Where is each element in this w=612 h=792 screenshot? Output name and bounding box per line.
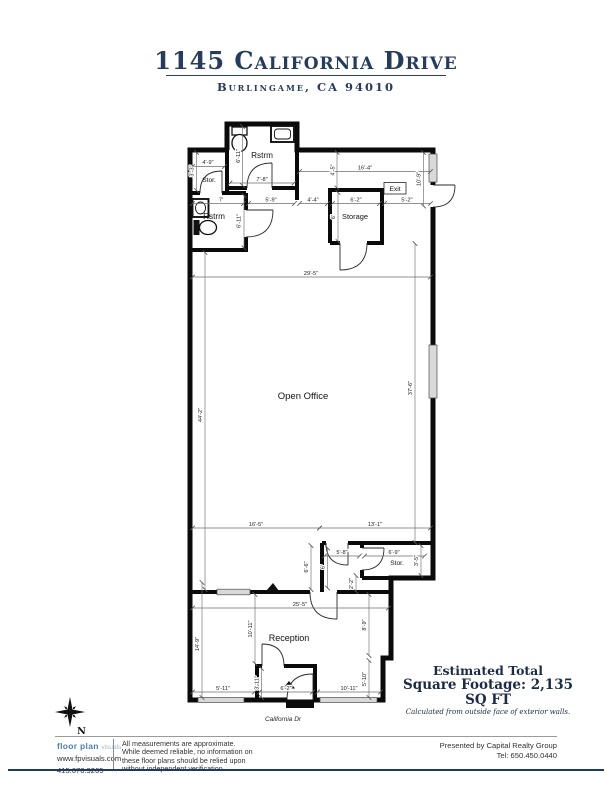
door-rstrm-left: [246, 210, 273, 237]
dim-label: 5'-9": [265, 198, 276, 204]
dim-label: 6'-11": [236, 149, 242, 163]
toilet-tank-left: [194, 220, 200, 235]
summary-line2: Square Footage: 2,135 SQ FT: [400, 678, 576, 708]
dim-label: 7'-8": [256, 177, 267, 183]
window-front-left: [198, 698, 244, 703]
dim-label: 5'-2": [401, 198, 412, 204]
brand-logo-bold: floor plan: [57, 741, 99, 751]
presented-tel: Tel: 650.450.0440: [440, 751, 557, 761]
door-rstrm-top: [247, 163, 272, 188]
brand-logo-light: visuals: [101, 744, 121, 751]
dim-label: 7': [219, 198, 223, 204]
dim-label: 5'-10": [362, 672, 368, 686]
window-divider: [217, 589, 250, 595]
door-stop-wedge: [266, 583, 279, 591]
door-exit: [433, 185, 455, 207]
dim-label: 6'-6": [304, 561, 310, 572]
summary-note: Calculated from outside face of exterior…: [400, 708, 576, 717]
dim-label: 10'-11": [248, 621, 254, 638]
toilet-bowl-top: [232, 135, 247, 152]
window-front-right: [320, 698, 377, 703]
dimension-labels: 4'-9" 7'-8" 16'-4" 7' 5'-9" 4'-4" 6'-2" …: [190, 149, 423, 692]
dim-label: 29'-5": [304, 271, 318, 277]
sink-basin-top: [275, 129, 291, 139]
windows: [198, 154, 437, 702]
dim-label: 10'-11": [341, 686, 358, 692]
room-label-stor-top: Stor.: [202, 177, 216, 184]
footer-divider: [113, 739, 114, 771]
exit-label: Exit: [389, 186, 400, 193]
doors: [200, 163, 455, 708]
room-label-storage: Storage: [342, 212, 368, 221]
door-stor-right: [362, 548, 384, 570]
floor-plan-page: 1145 California Drive Burlingame, CA 940…: [0, 0, 612, 792]
door-storage: [340, 243, 367, 270]
room-label-rstrm-left: Rstrm: [203, 212, 225, 221]
presented-by: Presented by Capital Realty Group: [440, 741, 557, 751]
door-reception: [310, 592, 337, 619]
dim-label: 10'-9": [417, 172, 423, 186]
street-label: California Dr: [265, 716, 302, 723]
dim-label: 3'-3": [190, 165, 196, 176]
exit-tag: Exit: [384, 183, 406, 195]
dim-label: 6'-2": [350, 198, 361, 204]
room-label-open-office: Open Office: [278, 391, 329, 402]
room-label-stor-right: Stor.: [390, 560, 404, 567]
dim-label: 4'-4": [307, 198, 318, 204]
dim-label: 6': [321, 565, 327, 569]
dim-label: 3'-11": [255, 676, 261, 690]
window-right-top: [429, 154, 437, 182]
window-right-mid: [429, 345, 437, 398]
dim-label: 5'-11": [216, 686, 230, 692]
dim-label: 4'-9": [202, 160, 213, 166]
dim-label: 6'-11": [237, 214, 243, 228]
room-label-reception: Reception: [269, 633, 310, 643]
dim-label: 25'-5": [293, 602, 307, 608]
presented-by-block: Presented by Capital Realty Group Tel: 6…: [440, 741, 557, 760]
dim-label: 8'-9": [362, 619, 368, 630]
door-vestibule: [262, 644, 284, 666]
dim-label: 4'-5": [331, 164, 337, 175]
dim-label: 6'-9": [388, 550, 399, 556]
dim-label: 16'-4": [358, 166, 372, 172]
summary-block: Estimated Total Square Footage: 2,135 SQ…: [400, 664, 576, 717]
dim-label: 37'-6": [408, 381, 414, 395]
dim-label: 3'-5": [414, 555, 420, 566]
summary-line1: Estimated Total: [400, 664, 576, 678]
toilet-tank-top: [232, 127, 247, 135]
dimension-lines: [193, 127, 431, 698]
dim-label: 44'-2": [198, 408, 204, 422]
dim-label: 5'-8": [336, 550, 347, 556]
interior-walls: [190, 150, 433, 700]
dim-label: 2'-2": [349, 578, 355, 589]
page-bottom-rule: [8, 769, 604, 771]
dim-label: 6'-2": [280, 686, 291, 692]
footer-rule: [55, 736, 557, 737]
dim-label: 13'-1": [368, 522, 382, 528]
toilet-bowl-left: [200, 221, 217, 235]
room-label-rstrm-top: Rstrm: [251, 151, 273, 160]
dim-label: 6': [331, 215, 337, 219]
north-compass-icon: N: [53, 695, 87, 737]
exterior-walls: [190, 124, 433, 700]
dim-label: 14'-9": [195, 637, 201, 651]
entry-threshold: [286, 700, 314, 709]
dim-label: 16'-5": [249, 522, 263, 528]
